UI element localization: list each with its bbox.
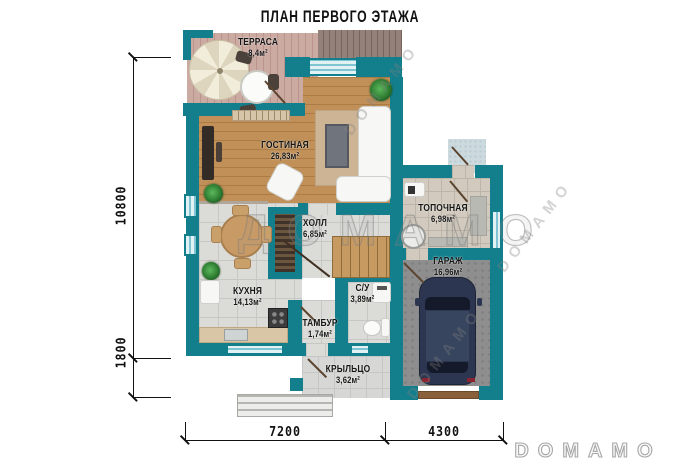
vestibule-door-opening — [306, 343, 328, 356]
piano — [202, 126, 214, 180]
room-area: 8,4м² — [222, 49, 294, 60]
kitchen-plant — [202, 262, 220, 280]
terrace-corner-wall-v — [183, 30, 191, 60]
porch-column — [290, 378, 303, 391]
room-name: ГОСТИНАЯ — [245, 140, 325, 152]
dim-height-total: 10800 — [115, 179, 130, 233]
room-name: ТЕРРАСА — [222, 37, 294, 49]
dim-ext-bottom — [133, 397, 171, 398]
dim-height-lower: 1800 — [115, 331, 130, 374]
boiler-door-opening — [452, 165, 474, 178]
label-vestibule: ТАМБУР 1,74м² — [294, 318, 345, 340]
car-taillight-right — [467, 378, 475, 382]
living-plant-bottom — [204, 184, 223, 203]
label-wc: С/У 3,89м² — [345, 283, 381, 305]
toilet-tank — [381, 318, 390, 337]
room-area: 3,62м² — [316, 376, 380, 387]
west-window-1 — [184, 194, 198, 218]
boiler-unit — [404, 182, 425, 197]
page-title: ПЛАН ПЕРВОГО ЭТАЖА — [236, 8, 445, 25]
floor-plan-canvas: ТЕРРАСА 8,4м² ГОСТИНАЯ 26,83м² ХОЛЛ 6,85… — [0, 0, 674, 470]
room-area: 26,83м² — [245, 152, 325, 163]
dim-ext-h3 — [503, 422, 504, 440]
dim-width-left: 7200 — [245, 425, 326, 440]
room-area: 16,96м² — [416, 268, 480, 279]
boiler-panel — [408, 186, 415, 194]
label-living: ГОСТИНАЯ 26,83м² — [245, 140, 325, 162]
umbrella-pole — [217, 68, 223, 74]
dim-ext-h2 — [385, 422, 386, 440]
domamo-logo: DOMAMO — [512, 440, 664, 463]
car-mirror-left — [415, 298, 420, 306]
garage-south-wall-right — [479, 386, 493, 400]
piano-bench — [216, 142, 222, 162]
label-garage: ГАРАЖ 16,96м² — [416, 256, 480, 278]
living-east-wall — [390, 77, 403, 178]
living-top-window — [308, 58, 358, 76]
label-kitchen: КУХНЯ 14,13м² — [214, 286, 282, 308]
west-wall — [186, 103, 199, 345]
room-name: С/У — [345, 283, 381, 295]
top-wall-left — [285, 57, 310, 77]
toilet-bowl — [363, 320, 381, 336]
car-windshield — [425, 297, 470, 310]
side-entry-wall — [390, 165, 460, 178]
room-area: 14,13м² — [214, 298, 282, 309]
dim-ext-mid — [133, 358, 171, 359]
sideboard — [232, 110, 290, 121]
sofa-chaise — [336, 176, 391, 202]
room-area: 3,89м² — [345, 295, 381, 306]
dining-chair-3 — [234, 258, 251, 269]
west-window-2 — [184, 234, 198, 256]
dim-line-horizontal — [185, 440, 503, 441]
wc-south-window — [350, 344, 370, 355]
dining-chair-2 — [211, 226, 222, 243]
dim-width-right: 4300 — [404, 425, 485, 440]
pergola-planks — [318, 30, 402, 58]
garage-gate — [418, 391, 479, 399]
stove — [268, 308, 288, 328]
dim-ext-top — [133, 57, 171, 58]
entry-steps — [237, 394, 333, 417]
dim-line-vertical — [133, 57, 134, 398]
room-name: КУХНЯ — [214, 286, 282, 298]
room-name: ТАМБУР — [294, 318, 345, 330]
room-area: 1,74м² — [294, 330, 345, 341]
label-terrace: ТЕРРАСА 8,4м² — [222, 37, 294, 59]
label-porch: КРЫЛЬЦО 3,62м² — [316, 364, 380, 386]
room-name: ГАРАЖ — [416, 256, 480, 268]
kitchen-sink — [224, 329, 248, 341]
dim-ext-h1 — [185, 422, 186, 440]
kitchen-south-window — [226, 344, 284, 355]
room-name: КРЫЛЬЦО — [316, 364, 380, 376]
